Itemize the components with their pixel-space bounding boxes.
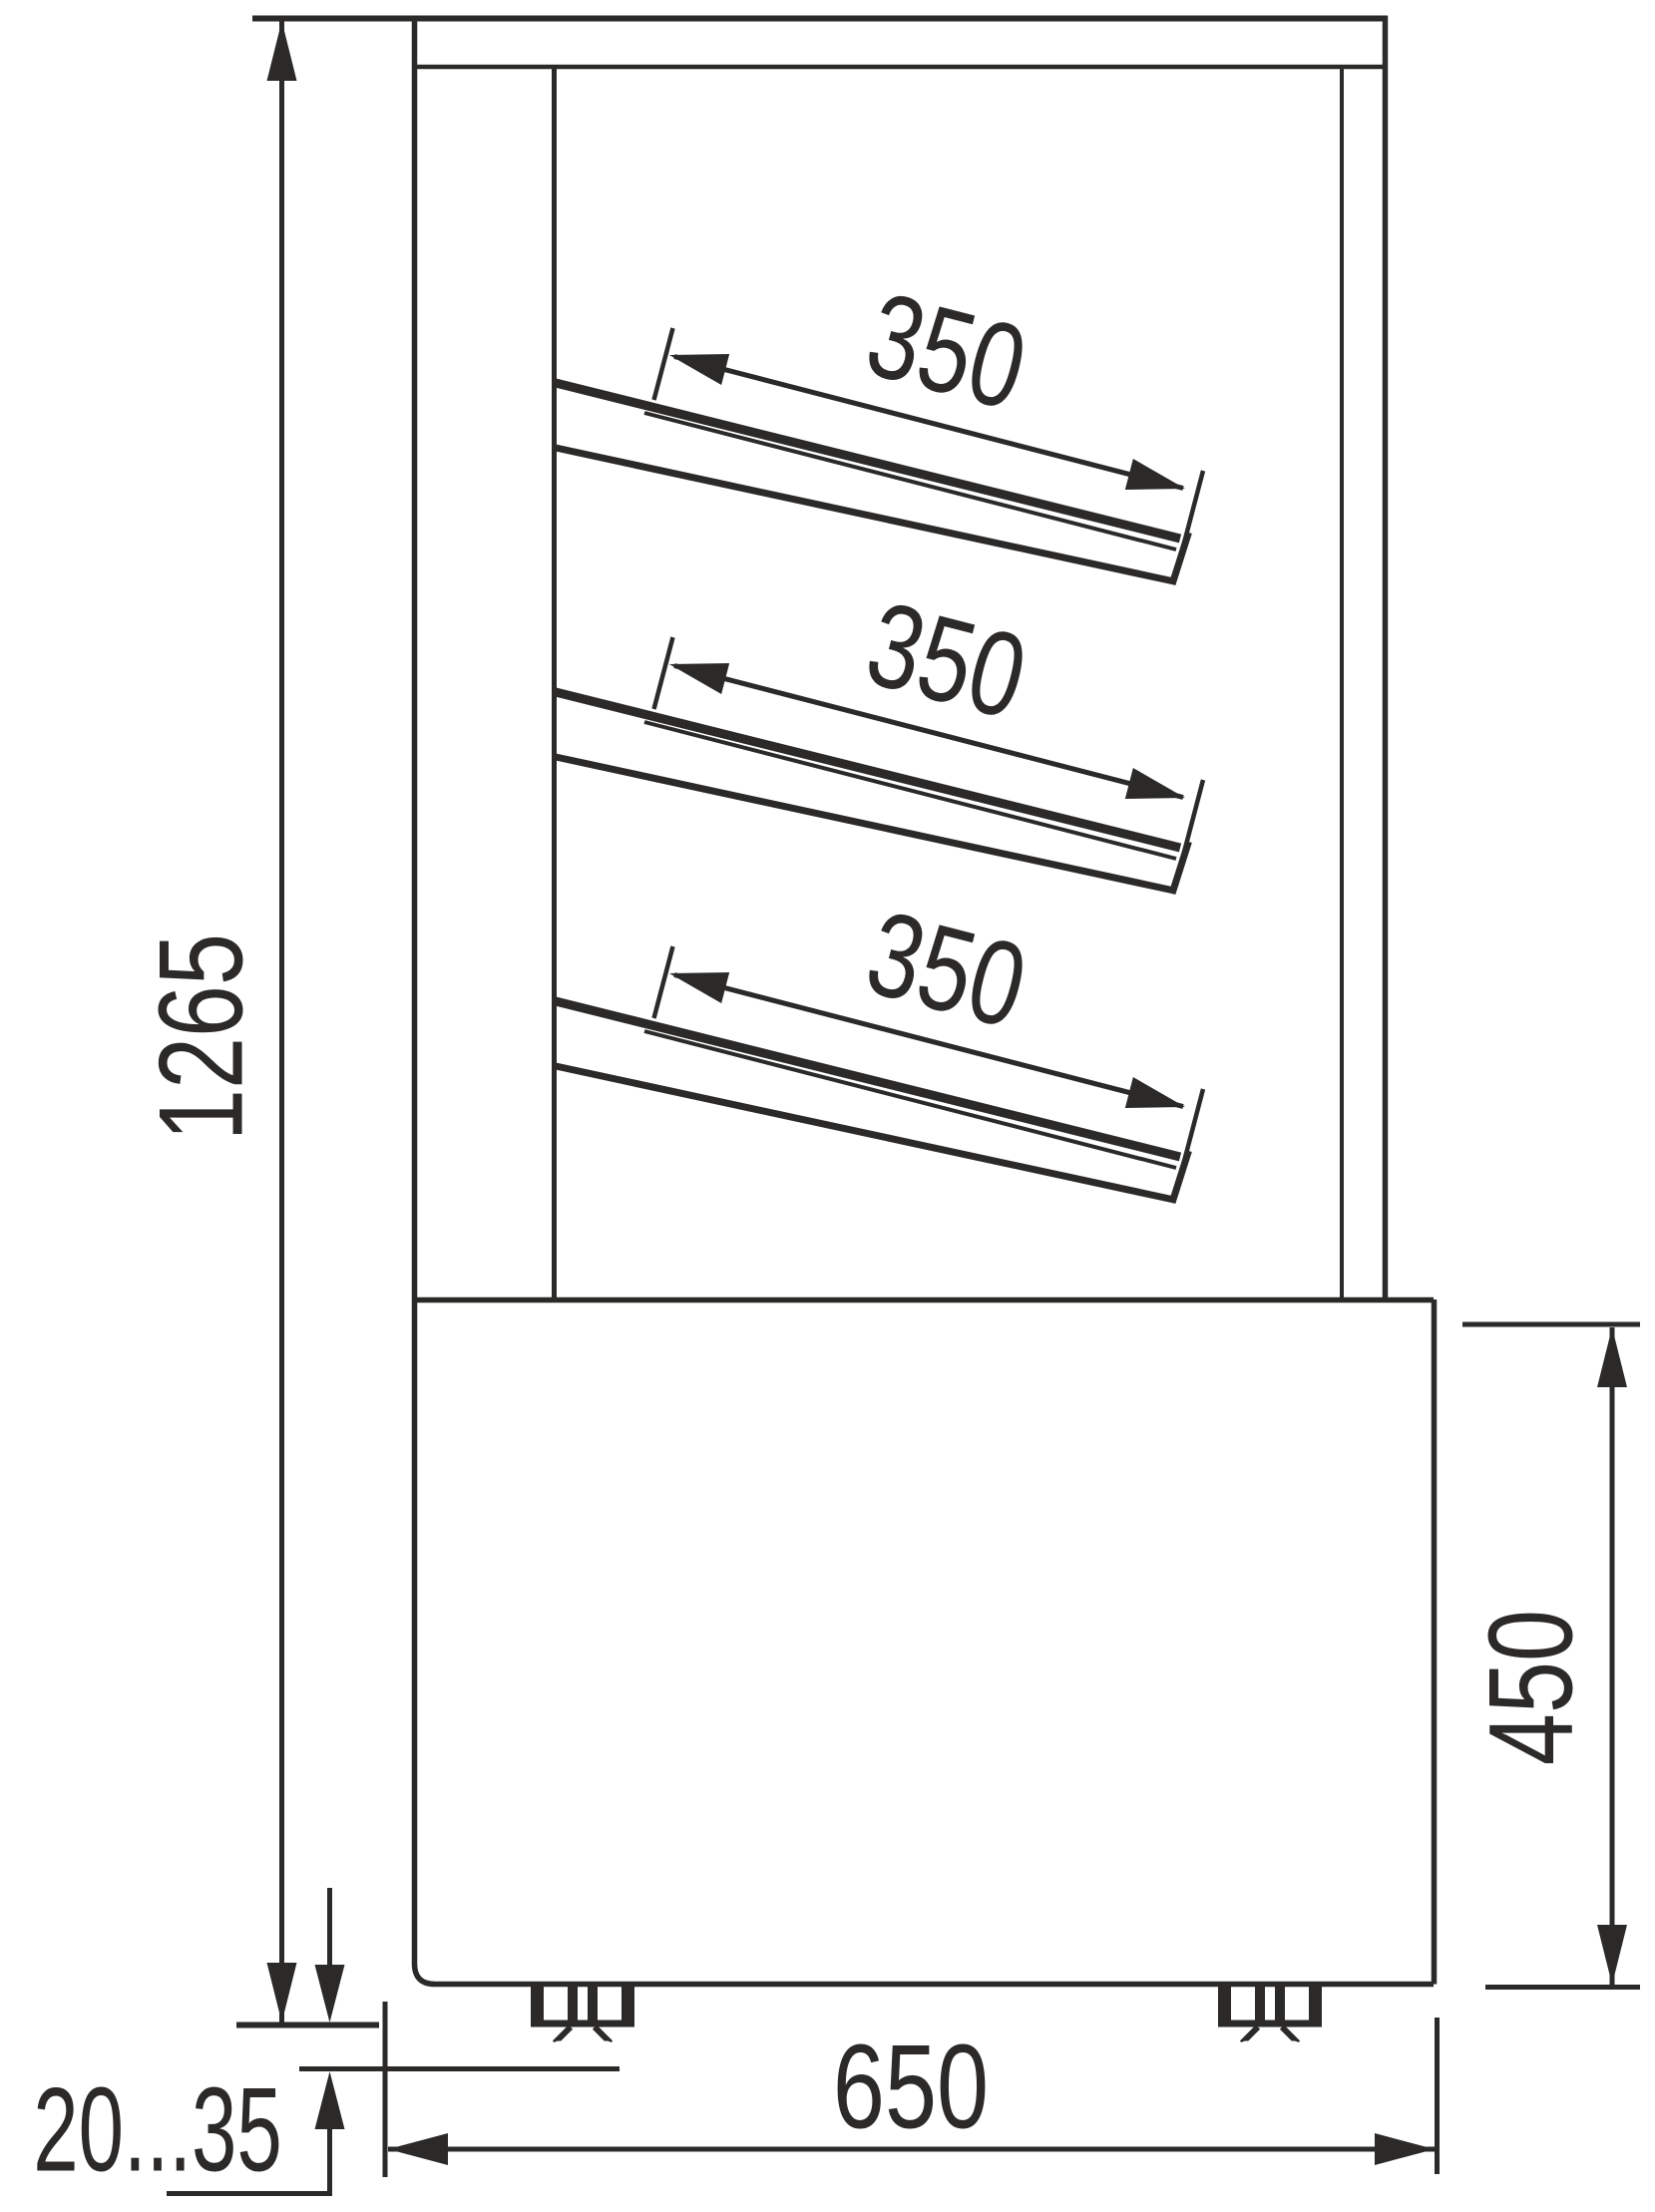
foot-range-arrow-down <box>315 1965 345 2023</box>
cabinet-outline <box>252 16 1435 1985</box>
base-depth-arrow-right <box>1375 2133 1435 2165</box>
height-dim-arrow-top <box>267 21 297 81</box>
dimension-overall-height: 1265 <box>134 21 379 2026</box>
height-dim-arrow-bottom <box>267 1963 297 2023</box>
technical-drawing: 350 350 350 1265 450 650 <box>0 0 1655 2212</box>
base-height-arrow-top <box>1597 1327 1627 1387</box>
display-case-drawing: 350 350 350 1265 450 650 <box>0 0 1655 2212</box>
left-foot <box>531 1985 634 2067</box>
shelf-3: 350 <box>556 886 1203 1203</box>
base-height-arrow-bottom <box>1597 1925 1627 1985</box>
shelf-2: 350 <box>556 576 1203 894</box>
shelf-1: 350 <box>556 267 1203 584</box>
overall-height-label: 1265 <box>134 933 267 1141</box>
base-depth-arrow-left <box>388 2133 448 2165</box>
foot-range-label: 20...35 <box>33 2062 282 2196</box>
dimension-base-depth: 650 <box>385 2002 1438 2177</box>
right-foot <box>1218 1985 1322 2067</box>
base-height-label: 450 <box>1463 1610 1597 1765</box>
base-depth-label: 650 <box>833 2020 989 2153</box>
dimension-base-height: 450 <box>1462 1324 1640 1988</box>
foot-range-arrow-up <box>315 2071 345 2129</box>
